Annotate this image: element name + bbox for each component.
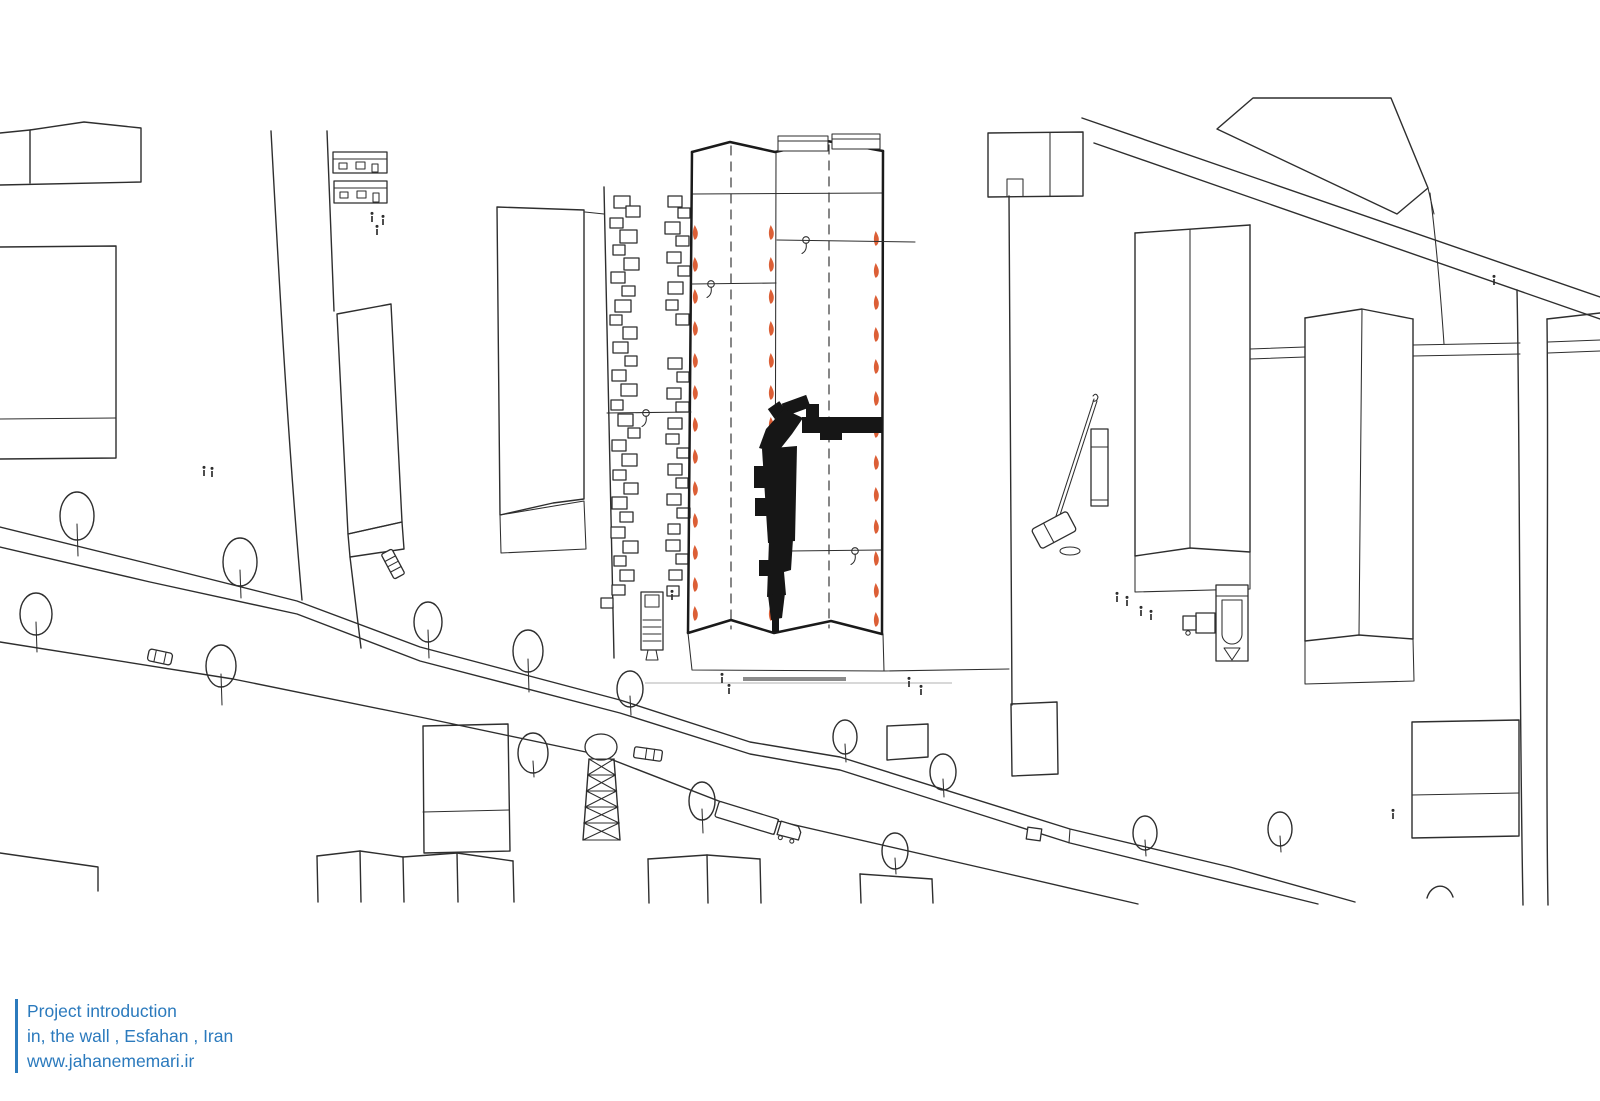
- pedestrian-figure: [211, 467, 214, 477]
- cross-street-edge-6: [1548, 351, 1600, 353]
- debris-column-east: [665, 196, 690, 596]
- left-street-west-edge: [271, 131, 302, 600]
- ladder-truck: [641, 592, 663, 660]
- right-street-west-edge: [1517, 290, 1523, 905]
- pedestrian-figure: [376, 225, 379, 235]
- caption-subtitle: in, the wall , Esfahan , Iran: [27, 1024, 233, 1049]
- building-mid-tilted-band: [348, 522, 404, 557]
- bottom-building-row-mid: [648, 855, 933, 903]
- pedestrian-figure: [371, 212, 374, 222]
- pedestrian-figure: [908, 677, 911, 687]
- site-cross-line: [692, 193, 883, 194]
- pedestrian-figure: [1116, 592, 1119, 602]
- pedestrian-figure: [203, 466, 206, 476]
- caption-website: www.jahanememari.ir: [27, 1049, 233, 1074]
- right-street-east-edge: [1547, 319, 1548, 905]
- mobile-crane: [1031, 394, 1108, 555]
- building-center-west-band: [500, 501, 586, 553]
- anchor-callout-2: [692, 281, 776, 298]
- tree: [833, 720, 857, 762]
- city-blocks: [0, 98, 1600, 903]
- anchor-callout-4: [789, 548, 881, 565]
- pedestrian-figure: [1150, 610, 1153, 620]
- caption-block: Project introduction in, the wall , Esfa…: [15, 999, 233, 1074]
- tree: [617, 671, 643, 715]
- building-small-g: [1011, 702, 1058, 776]
- site-plan-drawing: [0, 0, 1600, 1101]
- small-house-row: [333, 152, 387, 203]
- pedestrian-figure: [382, 215, 385, 225]
- cargo-box: [1026, 827, 1042, 841]
- sidewalk-end-cap: [1069, 829, 1070, 843]
- site-south-band: [688, 633, 884, 671]
- cross-street-edge-5: [1548, 340, 1600, 342]
- cross-street-edge-1: [1250, 347, 1305, 349]
- cross-street-edge-4: [1413, 354, 1520, 356]
- tree: [930, 754, 956, 797]
- delivery-van: [381, 549, 405, 579]
- building-top-left: [0, 122, 141, 185]
- pickup-truck: [633, 747, 662, 762]
- pedestrian-figure: [1126, 596, 1129, 606]
- built-mass: [754, 395, 882, 632]
- site-south-fold-edge: [688, 620, 882, 634]
- diagonal-road-north-edge: [1082, 118, 1600, 297]
- alley-stub: [585, 212, 604, 214]
- main-road-south-edge: [0, 642, 1138, 904]
- semi-trailer-truck: [714, 801, 803, 845]
- pedestrian-figure: [1493, 275, 1496, 285]
- site-east-wall: [882, 151, 883, 634]
- tree: [1133, 816, 1157, 856]
- pedestrian-figure: [920, 685, 923, 695]
- pedestrian-figure: [1392, 809, 1395, 819]
- building-far-right-tall: [1305, 309, 1414, 684]
- caption-title: Project introduction: [27, 999, 233, 1024]
- tree: [518, 733, 548, 777]
- bottom-building-block: [423, 724, 510, 853]
- tree: [20, 593, 52, 652]
- street-east-of-parcel: [1009, 196, 1012, 705]
- service-truck: [1183, 613, 1215, 635]
- pedestrians: [203, 212, 1496, 819]
- tree: [689, 782, 715, 833]
- building-mid-tilted: [337, 304, 402, 534]
- tree: [882, 833, 908, 874]
- pedestrian-figure: [728, 684, 731, 694]
- cross-street-edge-2: [1250, 357, 1305, 359]
- bottom-left-corner-lines: [0, 853, 98, 891]
- building-center-west: [497, 207, 584, 515]
- bottom-building-row-west: [317, 851, 514, 902]
- parcel-right-of-site-edge: [883, 634, 1009, 671]
- building-top-mid-right: [988, 132, 1083, 197]
- building-bottom-right: [1412, 720, 1519, 838]
- lattice-mast: [583, 734, 620, 840]
- sedan-car: [147, 649, 173, 666]
- pedestrian-figure: [721, 673, 724, 683]
- concrete-mixer-truck: [1216, 585, 1248, 661]
- site-plan-canvas: Project introduction in, the wall , Esfa…: [0, 0, 1600, 1101]
- street-trees: [20, 492, 1453, 898]
- cross-street-edge-3: [1413, 343, 1520, 345]
- main-road-north-edge: [0, 527, 1355, 902]
- building-small-h: [887, 724, 928, 760]
- building-left-large: [0, 246, 116, 459]
- debris-column-west: [601, 196, 640, 608]
- tree: [1427, 886, 1453, 898]
- tree: [513, 630, 543, 692]
- tree: [1268, 812, 1292, 852]
- scale-bar: [743, 677, 846, 681]
- caption-accent-bar: [15, 999, 18, 1073]
- pedestrian-figure: [1140, 606, 1143, 616]
- site-west-wall: [688, 152, 692, 633]
- wedge-building-top-right: [1217, 98, 1444, 344]
- building-right-tall: [1135, 225, 1250, 592]
- anchor-callout-1: [777, 237, 915, 254]
